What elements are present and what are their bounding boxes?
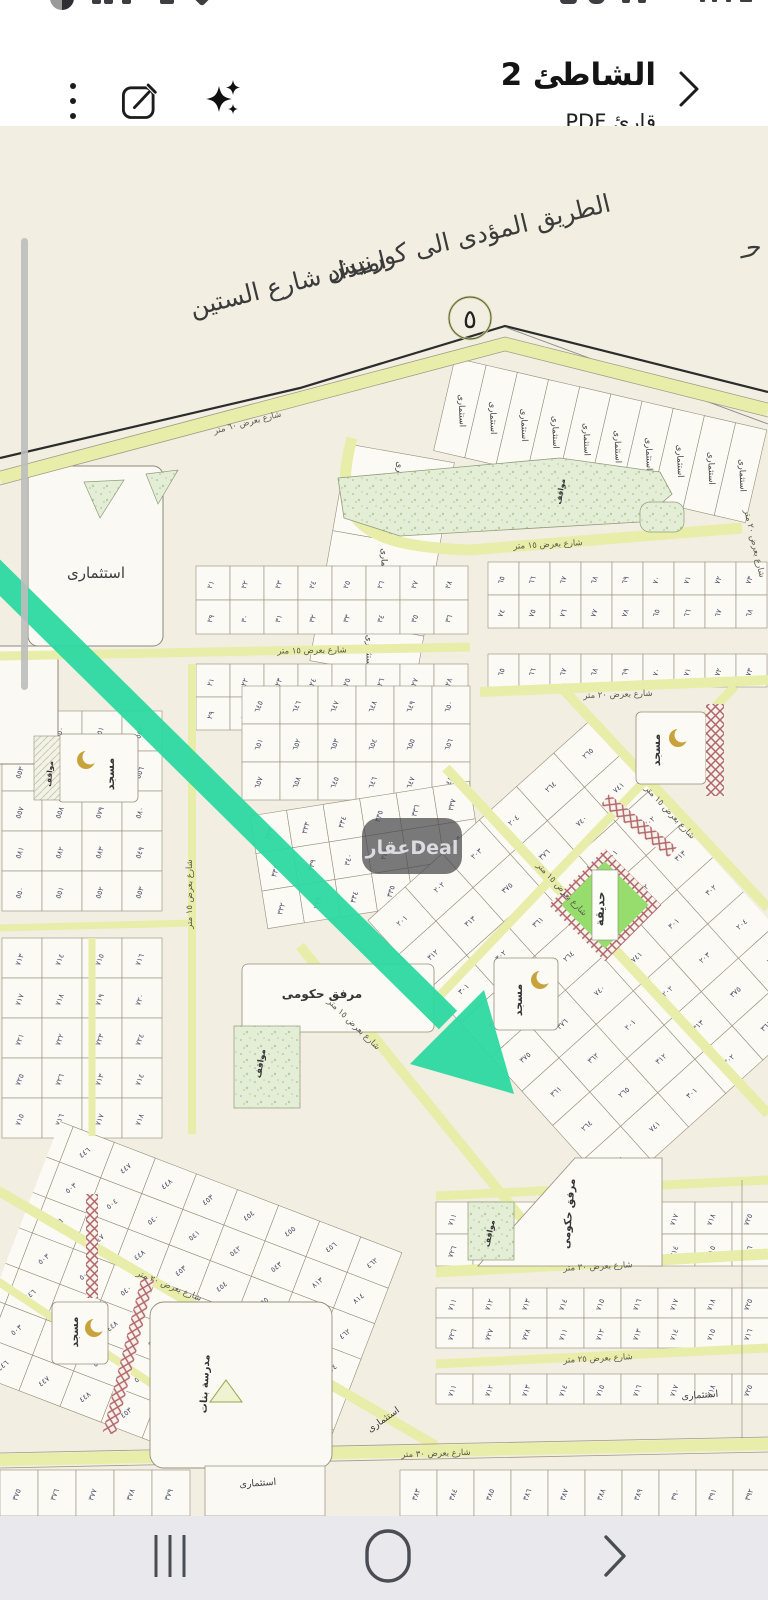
home-button[interactable] bbox=[343, 1516, 433, 1600]
status-icon bbox=[122, 0, 131, 4]
parcel-grid-mid-block: ٦٤٥٦٤٦٦٤٧٦٤٨٦٤٩٦٥٠٦٥١٦٥٢٦٥٣٦٥٤٦٥٥٦٥٦٦٥٧٦… bbox=[242, 686, 470, 800]
map-label: مسجد bbox=[104, 758, 117, 790]
map-label: مرفق حكومى bbox=[282, 987, 362, 1002]
map-label: حديقة bbox=[592, 891, 607, 926]
scroll-indicator[interactable] bbox=[21, 238, 28, 690]
recents-icon bbox=[148, 1531, 192, 1585]
pdf-map-document[interactable]: استثمارىاستثمارىاستثمارىاستثمارىاستثمارى… bbox=[0, 126, 768, 1516]
map-label: مسجد bbox=[650, 734, 663, 766]
hatch-strip bbox=[706, 704, 724, 796]
phone-screen: الشاطئ 2 قارئ PDF bbox=[0, 0, 768, 1600]
status-clock-fragment bbox=[700, 0, 705, 2]
parcel-grid-bottom-strip-left: ٣٧٥٣٧٦٣٧٧٣٧٨٣٧٩ bbox=[0, 1470, 190, 1516]
watermark-text: عقارDeal bbox=[365, 837, 459, 859]
parking-area bbox=[234, 1026, 300, 1108]
parcel-type-label: استثمارى bbox=[518, 409, 529, 442]
page-title: الشاطئ 2 bbox=[501, 60, 656, 91]
status-clock-fragment bbox=[726, 0, 731, 2]
status-icon bbox=[160, 0, 174, 4]
recents-button[interactable] bbox=[125, 1516, 215, 1600]
parcel-grid-bottom-right-2: ٧١١٧١٢٧١٣٧١٤٧١٥٧١٦٧١٧٧١٨٧٢٥٧٢٦٧٢٧٧٢٨٧١١٧… bbox=[436, 1288, 768, 1348]
chevron-right-icon bbox=[669, 65, 709, 113]
map-label: شارع بعرض ١٥ متر bbox=[276, 645, 347, 656]
parcel-type-label: استثمارى bbox=[705, 452, 716, 485]
status-icon bbox=[194, 0, 211, 6]
road-horizontal-left bbox=[0, 923, 192, 928]
circle-marker-number: ٥ bbox=[463, 305, 477, 335]
parcel-type-label: استثمارى bbox=[549, 416, 560, 449]
sparkles-icon bbox=[200, 76, 246, 122]
back-nav-button[interactable] bbox=[570, 1516, 660, 1600]
map-label: مسجد bbox=[69, 1317, 81, 1348]
investment-parcel-bottom bbox=[205, 1466, 325, 1516]
map-label: مسجد bbox=[512, 984, 525, 1016]
mosque-parcel bbox=[636, 712, 706, 784]
home-icon bbox=[363, 1527, 413, 1589]
cadastral-map: استثمارىاستثمارىاستثمارىاستثمارىاستثمارى… bbox=[0, 126, 768, 1516]
parcel-grid-bottom-strip-right: ٣٨٣٣٨٤٣٨٥٣٨٦٣٨٧٣٨٨٣٨٩٣٩٠٣٩١٣٩٢ bbox=[400, 1470, 768, 1516]
app-header: الشاطئ 2 قارئ PDF bbox=[0, 26, 768, 126]
back-button[interactable] bbox=[666, 66, 712, 112]
parcel-type-label: استثمارى bbox=[456, 394, 467, 427]
map-label: شارع بعرض ١٥ متر bbox=[185, 859, 195, 929]
status-icon bbox=[104, 0, 113, 4]
system-nav-bar bbox=[0, 1516, 768, 1600]
status-icon bbox=[588, 0, 605, 4]
status-bar bbox=[0, 0, 768, 26]
ai-tools-button[interactable] bbox=[200, 76, 246, 122]
menu-button[interactable] bbox=[50, 78, 96, 124]
mosque-parcel bbox=[494, 958, 558, 1030]
status-clock-fragment bbox=[712, 0, 717, 2]
parcel-type-label: استثمارى bbox=[674, 445, 685, 478]
status-icon bbox=[560, 0, 577, 4]
back-chevron-icon bbox=[600, 1531, 630, 1585]
parcel-grid-left-col-2: ٧١٣٧١٤٧١٥٧١٦٧١٧٧١٨٧١٩٧٢٠٧٢١٧٢٢٧٢٣٧٢٤٧٢٥٧… bbox=[2, 938, 162, 1138]
status-icon bbox=[638, 0, 646, 3]
parcel-type-label: استثمارى bbox=[612, 430, 623, 463]
parcel-type-label: استثمارى bbox=[487, 401, 498, 434]
parcel-type-label: استثمارى bbox=[736, 459, 747, 492]
mosque-parcel bbox=[58, 734, 138, 802]
edit-button[interactable] bbox=[118, 78, 164, 124]
status-icon bbox=[92, 0, 101, 4]
parcel-grid-rows-right-1: ٦٥٦٦٦٧٦٨٦٩٧٠٧١٧٢٧٣٧٤٧٥٧٦٧٧٧٨٦٥٦٦٦٧٦٨ bbox=[488, 562, 767, 628]
parcel-type-label: استثمارى bbox=[580, 423, 591, 456]
status-clock-fragment bbox=[740, 0, 752, 2]
parcel-grid-rows-center-1: ٢١٢٢٢٣٢٤٢٥٢٦٢٧٢٨٢٩٣٠٣١٣٢٣٣٣٤٣٥٣٦ bbox=[196, 566, 468, 634]
hatch-strip bbox=[86, 1194, 98, 1298]
park-blob bbox=[640, 502, 684, 532]
watermark-badge: عقارDeal bbox=[362, 818, 462, 874]
school-parcel bbox=[150, 1302, 332, 1468]
status-notification-icon bbox=[50, 0, 74, 10]
compose-edit-icon bbox=[119, 79, 163, 123]
status-icon bbox=[622, 0, 630, 3]
kebab-menu-icon bbox=[67, 79, 79, 123]
map-label: استثمارى bbox=[67, 564, 125, 582]
parcel-type-label: استثمارى bbox=[643, 437, 654, 470]
